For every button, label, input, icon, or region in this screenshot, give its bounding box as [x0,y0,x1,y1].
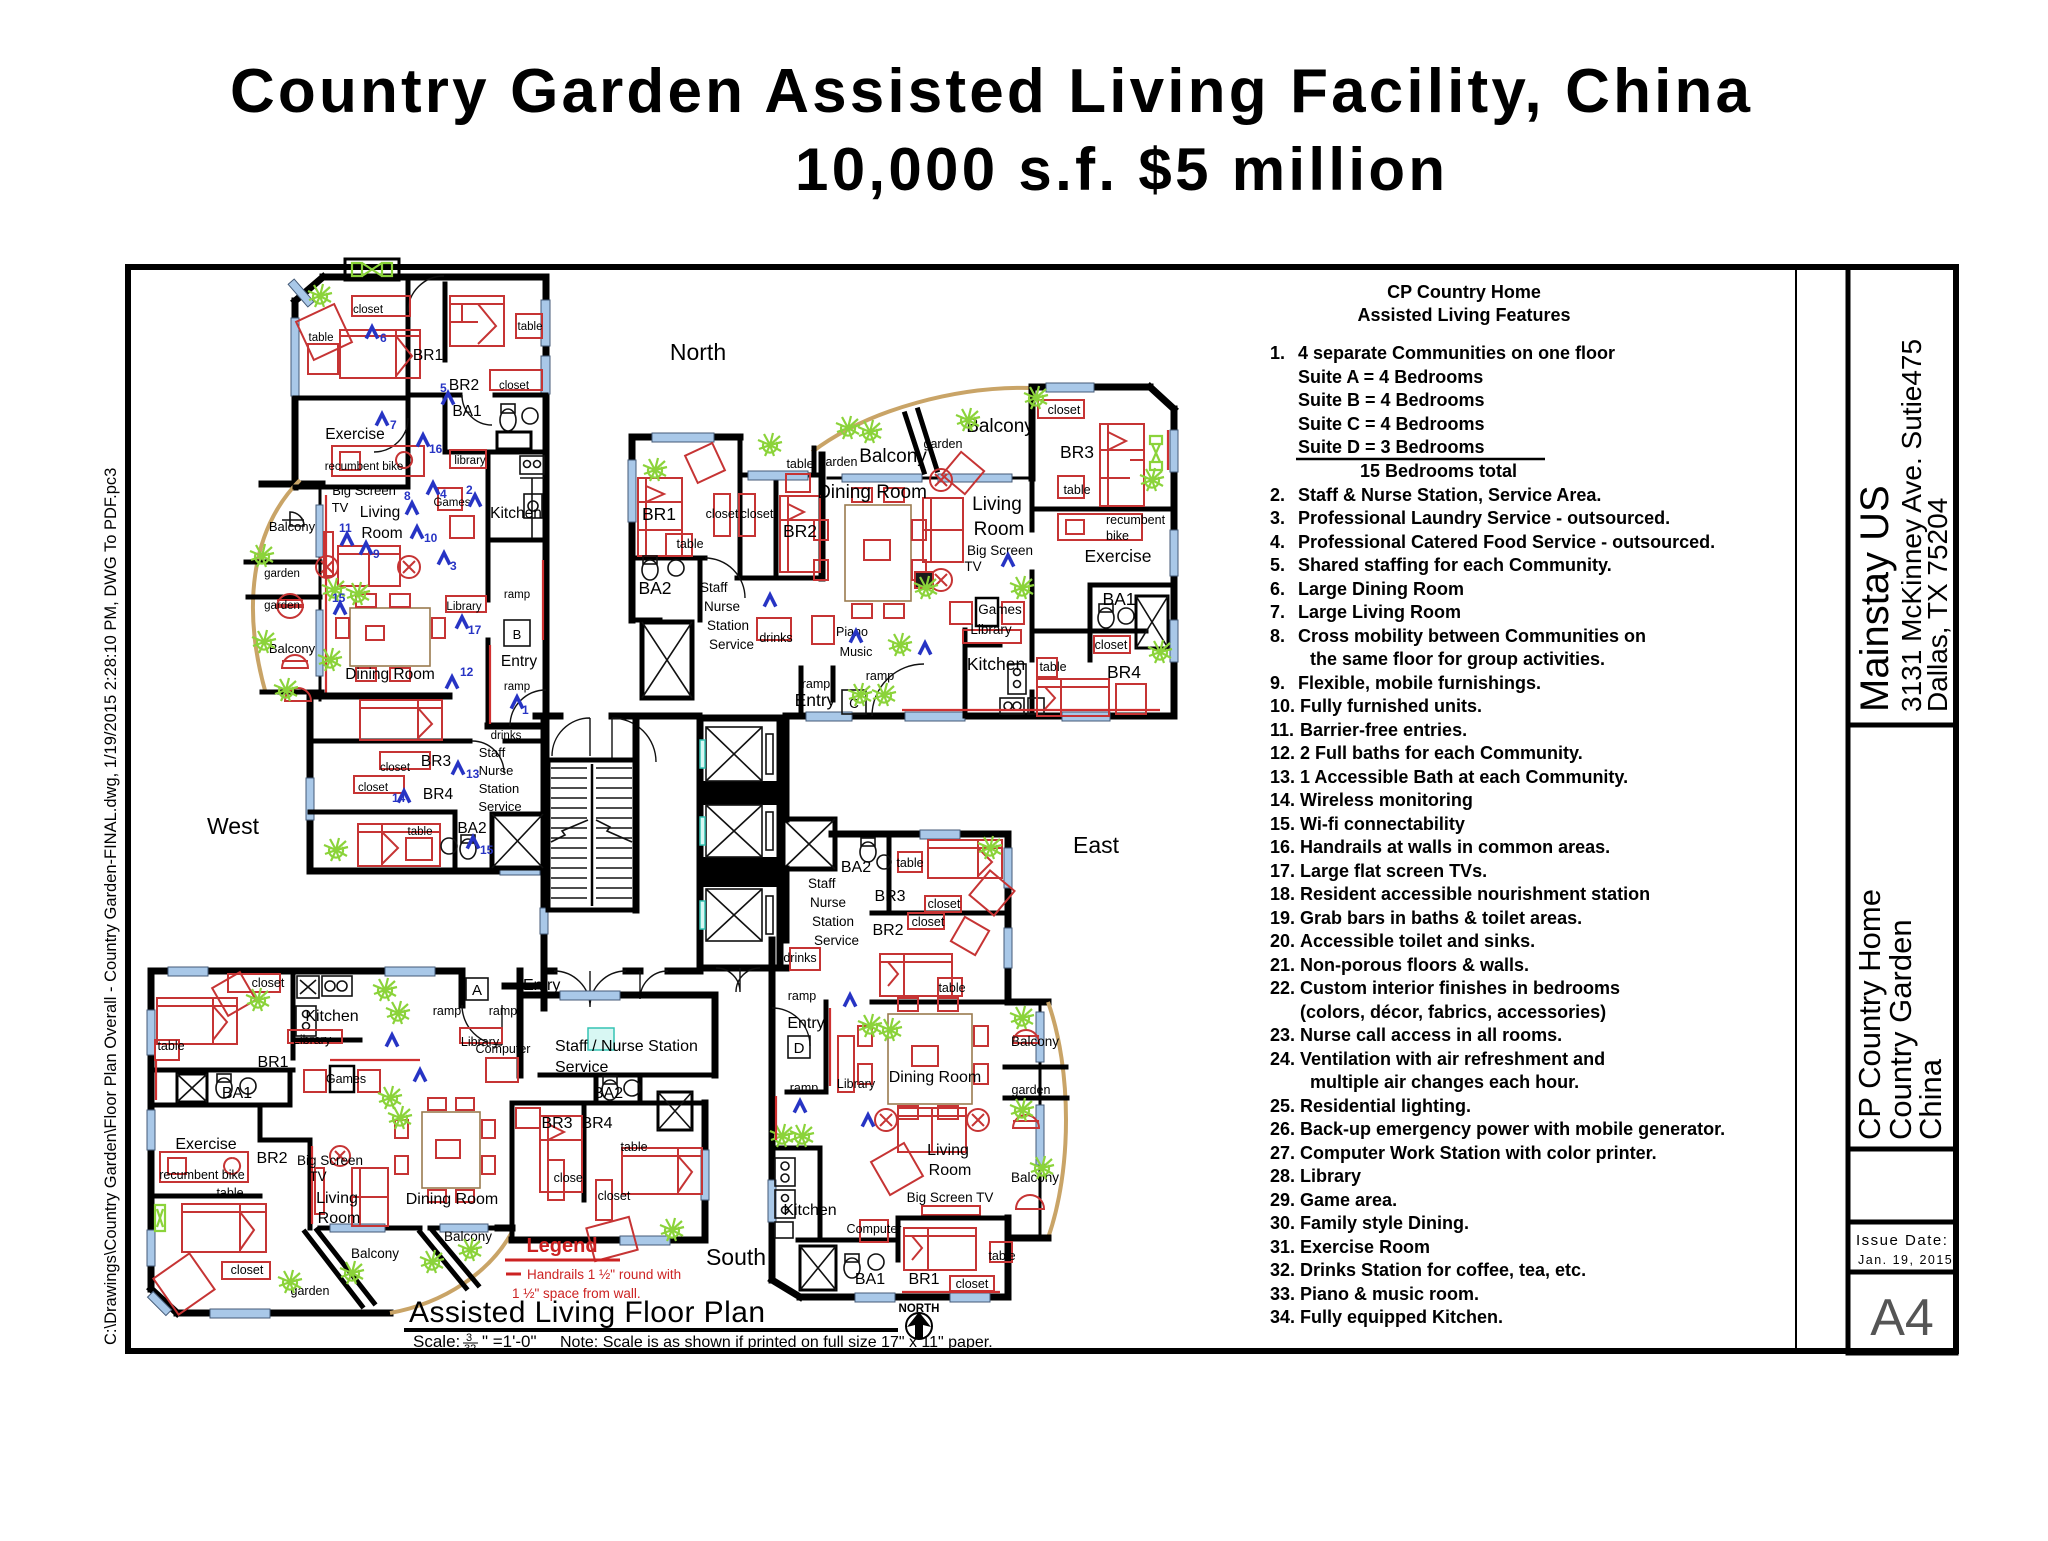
svg-text:8.: 8. [1270,626,1285,646]
svg-text:9: 9 [373,547,380,561]
svg-text:Issue Date:: Issue Date: [1856,1232,1948,1249]
svg-text:Living: Living [360,504,401,521]
svg-text:16: 16 [429,442,443,456]
svg-text:BA1: BA1 [222,1085,252,1102]
svg-text:ramp: ramp [790,1081,819,1095]
svg-text:Dining Room: Dining Room [889,1069,981,1086]
svg-text:Library: Library [293,1033,332,1047]
svg-text:library: library [454,455,486,467]
svg-text:multiple air changes each hour: multiple air changes each hour. [1310,1072,1579,1092]
svg-text:21.: 21. [1270,955,1295,975]
svg-text:drinks: drinks [783,951,816,965]
svg-text:17.: 17. [1270,861,1295,881]
svg-text:25.: 25. [1270,1096,1295,1116]
svg-text:15.: 15. [1270,814,1295,834]
svg-text:5.: 5. [1270,555,1285,575]
svg-text:BR1: BR1 [413,347,443,364]
svg-text:19.: 19. [1270,908,1295,928]
svg-text:Balcony: Balcony [1011,1034,1059,1049]
svg-text:Balcony: Balcony [269,641,316,656]
svg-text:13.: 13. [1270,767,1295,787]
svg-text:closet: closet [231,1263,264,1277]
svg-text:Service: Service [814,933,859,948]
svg-text:BR4: BR4 [581,1115,612,1132]
svg-text:Big Screen TV: Big Screen TV [907,1190,994,1205]
svg-text:Suite A = 4 Bedrooms: Suite A = 4 Bedrooms [1298,367,1483,387]
svg-text:BA2: BA2 [638,578,671,598]
svg-text:30.: 30. [1270,1213,1295,1233]
svg-text:garden: garden [819,455,858,469]
svg-text:Balcony: Balcony [444,1229,492,1244]
svg-text:Resident accessible nourishmen: Resident accessible nourishment station [1300,884,1650,904]
svg-text:B: B [513,627,522,642]
svg-text:2 Full baths for each Communit: 2 Full baths for each Community. [1300,743,1583,763]
svg-text:24.: 24. [1270,1049,1295,1069]
svg-text:Game area.: Game area. [1300,1190,1397,1210]
svg-text:ramp: ramp [866,669,895,683]
svg-text:Service: Service [709,637,754,652]
svg-text:Station: Station [707,618,749,633]
svg-text:South: South [706,1244,766,1270]
svg-text:Fully furnished units.: Fully furnished units. [1300,696,1482,716]
svg-text:32.: 32. [1270,1260,1295,1280]
svg-text:Music: Music [840,645,873,659]
svg-text:drinks: drinks [491,730,522,742]
svg-text:table: table [309,332,334,344]
svg-text:BR3: BR3 [421,753,451,770]
svg-text:BR1: BR1 [642,504,676,524]
svg-text:A4: A4 [1870,1289,1934,1347]
svg-text:Accessible toilet and sinks.: Accessible toilet and sinks. [1300,931,1535,951]
svg-text:recumbent: recumbent [1106,513,1166,527]
svg-text:closet: closet [353,304,384,316]
svg-text:5: 5 [440,381,447,395]
svg-text:Entry: Entry [795,690,836,710]
svg-text:Nurse: Nurse [810,895,846,910]
svg-text:Games: Games [326,1072,366,1086]
svg-text:CP Country Home: CP Country Home [1852,889,1887,1140]
svg-text:Entry: Entry [501,653,537,670]
svg-text:Dining Room: Dining Room [817,482,927,503]
svg-text:closet: closet [499,380,530,392]
svg-text:Exercise Room: Exercise Room [1300,1237,1430,1257]
svg-text:Wi-fi connectability: Wi-fi connectability [1300,814,1465,834]
svg-text:" =1'-0": " =1'-0" [482,1332,537,1351]
svg-text:the same floor for group activ: the same floor for group activities. [1310,649,1605,669]
svg-text:Nurse: Nurse [704,599,740,614]
svg-text:drinks: drinks [759,631,792,645]
svg-text:table: table [157,1039,184,1053]
svg-text:BR2: BR2 [256,1150,287,1167]
svg-text:10.: 10. [1270,696,1295,716]
svg-text:Library: Library [837,1077,876,1091]
svg-text:29.: 29. [1270,1190,1295,1210]
svg-text:closet: closet [1095,638,1128,652]
svg-text:34.: 34. [1270,1307,1295,1327]
svg-text:26.: 26. [1270,1119,1295,1139]
svg-text:Scale:: Scale: [413,1332,460,1351]
svg-text:Room: Room [318,1210,361,1227]
svg-text:Handrails 1 ½" round with: Handrails 1 ½" round with [527,1267,681,1282]
svg-text:Kitchen: Kitchen [305,1008,358,1025]
svg-text:closet: closet [928,897,961,911]
svg-text:Drinks Station for coffee, tea: Drinks Station for coffee, tea, etc. [1300,1260,1586,1280]
svg-text:BR3: BR3 [1060,442,1094,462]
svg-text:2.: 2. [1270,485,1285,505]
svg-text:C:\Drawings\Country Garden\Flo: C:\Drawings\Country Garden\Floor Plan Ov… [102,468,120,1345]
svg-text:Staff / Nurse Station: Staff / Nurse Station [555,1038,698,1055]
svg-text:12: 12 [460,665,474,679]
svg-text:Balcony: Balcony [351,1246,399,1261]
svg-text:Room: Room [974,519,1025,540]
svg-text:Service: Service [478,799,521,814]
svg-text:Staff: Staff [479,745,506,760]
svg-text:table: table [786,457,813,471]
svg-text:Computer: Computer [476,1042,531,1056]
svg-text:Room: Room [929,1162,972,1179]
svg-text:BA1: BA1 [452,403,481,420]
svg-text:Library: Library [1300,1166,1361,1186]
svg-text:BA2: BA2 [457,820,486,837]
svg-text:table: table [1039,660,1066,674]
svg-text:BA2: BA2 [593,1085,623,1102]
svg-text:12.: 12. [1270,743,1295,763]
svg-text:table: table [1063,483,1090,497]
svg-text:33.: 33. [1270,1284,1295,1304]
svg-text:Nurse: Nurse [479,763,514,778]
svg-text:6: 6 [380,331,387,345]
svg-text:garden: garden [264,568,300,580]
svg-text:Balcony: Balcony [966,416,1034,437]
svg-text:32: 32 [464,1343,476,1355]
svg-text:31.: 31. [1270,1237,1295,1257]
svg-text:CP Country Home: CP Country Home [1387,282,1541,302]
svg-text:Large Living Room: Large Living Room [1298,602,1461,622]
svg-text:closet: closet [741,507,774,521]
svg-text:closet: closet [598,1189,631,1203]
svg-text:17: 17 [468,623,482,637]
svg-text:Non-porous floors & walls.: Non-porous floors & walls. [1300,955,1529,975]
svg-text:North: North [670,339,726,365]
svg-text:Flexible, mobile furnishings.: Flexible, mobile furnishings. [1298,673,1541,693]
svg-text:14.: 14. [1270,790,1295,810]
svg-text:Big Screen: Big Screen [967,543,1033,558]
svg-text:23.: 23. [1270,1025,1295,1045]
svg-text:garden: garden [924,437,963,451]
svg-text:West: West [207,813,260,839]
svg-text:27.: 27. [1270,1143,1295,1163]
svg-text:Station: Station [479,781,519,796]
svg-text:11.: 11. [1270,720,1294,740]
svg-text:Family style Dining.: Family style Dining. [1300,1213,1469,1233]
svg-text:BR3: BR3 [874,888,905,905]
svg-text:BR2: BR2 [872,922,903,939]
svg-text:11: 11 [339,521,352,535]
svg-text:China: China [1913,1058,1948,1140]
svg-text:Legend: Legend [526,1235,597,1257]
svg-text:Library: Library [970,622,1012,637]
svg-text:4 separate Communities on one: 4 separate Communities on one floor [1298,343,1615,363]
svg-text:Suite C = 4 Bedrooms: Suite C = 4 Bedrooms [1298,414,1485,434]
svg-text:Library: Library [446,601,481,613]
svg-text:Kitchen: Kitchen [783,1202,836,1219]
svg-text:Jan. 19, 2015: Jan. 19, 2015 [1858,1253,1953,1267]
svg-text:BA2: BA2 [841,859,871,876]
svg-text:Ventilation with air refreshme: Ventilation with air refreshment and [1300,1049,1605,1069]
svg-text:closet: closet [912,915,945,929]
svg-text:1 ½" space from wall.: 1 ½" space from wall. [512,1286,641,1301]
svg-text:Wireless monitoring: Wireless monitoring [1300,790,1473,810]
svg-text:BR2: BR2 [783,521,817,541]
svg-text:table: table [988,1249,1015,1263]
svg-text:Professional Catered Food Serv: Professional Catered Food Service - outs… [1298,532,1715,552]
svg-text:Kitchen: Kitchen [967,654,1025,674]
svg-text:Computer Work Station with col: Computer Work Station with color printer… [1300,1143,1657,1163]
svg-text:Big Screen: Big Screen [297,1153,363,1168]
svg-text:Barrier-free entries.: Barrier-free entries. [1300,720,1467,740]
svg-text:Entry: Entry [523,977,560,994]
svg-text:closet: closet [706,507,739,521]
svg-text:Dining Room: Dining Room [345,666,435,683]
svg-text:Assisted Living Features: Assisted Living Features [1357,305,1570,325]
svg-text:Exercise: Exercise [325,426,384,443]
svg-text:recumbent bike: recumbent bike [325,461,404,473]
svg-text:Large flat screen TVs.: Large flat screen TVs. [1300,861,1487,881]
svg-text:table: table [408,826,433,838]
svg-text:bike: bike [1106,529,1129,543]
svg-text:BR3: BR3 [541,1115,572,1132]
svg-text:Room: Room [361,525,402,542]
svg-text:Dallas, TX 75204: Dallas, TX 75204 [1922,498,1953,712]
svg-text:recumbent bike: recumbent bike [159,1168,245,1182]
svg-text:3.: 3. [1270,508,1285,528]
svg-text:Nurse call access in all rooms: Nurse call access in all rooms. [1300,1025,1562,1045]
svg-text:8: 8 [404,489,411,503]
svg-text:Computer: Computer [847,1222,902,1236]
svg-text:garden: garden [264,600,300,612]
svg-text:Residential lighting.: Residential lighting. [1300,1096,1471,1116]
svg-text:Grab bars in baths & toilet ar: Grab bars in baths & toilet areas. [1300,908,1582,928]
svg-text:Staff: Staff [700,580,728,595]
svg-text:18.: 18. [1270,884,1295,904]
svg-text:BR4: BR4 [423,786,454,803]
svg-text:table: table [938,981,965,995]
svg-text:Suite B = 4 Bedrooms: Suite B = 4 Bedrooms [1298,390,1485,410]
svg-text:Piano & music room.: Piano & music room. [1300,1284,1479,1304]
svg-text:6.: 6. [1270,579,1285,599]
svg-text:Station: Station [812,914,854,929]
svg-text:22.: 22. [1270,978,1295,998]
svg-text:Living: Living [927,1142,969,1159]
svg-text:(colors, décor, fabrics, acces: (colors, décor, fabrics, accessories) [1300,1002,1606,1022]
svg-text:East: East [1073,832,1120,858]
svg-text:1: 1 [522,703,529,717]
svg-text:1 Accessible Bath at each Comm: 1 Accessible Bath at each Community. [1300,767,1628,787]
svg-text:closet: closet [380,762,411,774]
svg-text:Suite D = 3 Bedrooms: Suite D = 3 Bedrooms [1298,437,1485,457]
svg-text:ramp: ramp [504,589,530,601]
svg-text:10,000 s.f. $5 million: 10,000 s.f. $5 million [795,136,1445,203]
svg-text:Staff: Staff [808,876,836,891]
svg-text:ramp: ramp [504,681,530,693]
svg-text:ramp: ramp [433,1004,462,1018]
svg-text:15: 15 [480,843,494,857]
svg-text:3: 3 [450,559,457,573]
svg-text:table: table [676,537,703,551]
svg-text:BR2: BR2 [449,377,479,394]
svg-text:1.: 1. [1270,343,1285,363]
svg-text:20.: 20. [1270,931,1295,951]
svg-text:BR1: BR1 [257,1054,288,1071]
svg-text:4.: 4. [1270,532,1285,552]
svg-text:Dining Room: Dining Room [406,1191,498,1208]
svg-text:Balcony: Balcony [859,446,927,467]
svg-text:TV: TV [309,1169,326,1184]
svg-text:13: 13 [466,767,480,781]
svg-text:2: 2 [466,483,473,497]
svg-text:14: 14 [392,791,406,805]
svg-text:closet: closet [1048,403,1081,417]
svg-text:table: table [896,856,923,870]
svg-text:Mainstay US: Mainstay US [1853,485,1897,712]
svg-text:closet: closet [252,976,285,990]
svg-text:Service: Service [555,1059,608,1076]
svg-text:table: table [216,1186,243,1200]
svg-text:A: A [472,982,482,999]
svg-text:Staff & Nurse Station, Service: Staff & Nurse Station, Service Area. [1298,485,1601,505]
svg-text:7: 7 [390,418,397,432]
svg-text:BR1: BR1 [908,1271,939,1288]
svg-text:Fully equipped Kitchen.: Fully equipped Kitchen. [1300,1307,1503,1327]
svg-text:table: table [620,1140,647,1154]
svg-text:TV: TV [964,559,981,574]
svg-text:BA1: BA1 [855,1271,885,1288]
svg-text:Large Dining Room: Large Dining Room [1298,579,1464,599]
svg-text:TV: TV [332,500,349,515]
svg-text:ramp: ramp [489,1004,518,1018]
svg-text:Custom interior finishes in be: Custom interior finishes in bedrooms [1300,978,1620,998]
svg-text:Living: Living [972,494,1022,515]
svg-text:Living: Living [316,1190,358,1207]
svg-text:Kitchen: Kitchen [490,505,542,522]
svg-text:BR4: BR4 [1107,662,1141,682]
svg-text:table: table [518,321,543,333]
svg-text:10: 10 [424,531,438,545]
svg-text:Big Screen: Big Screen [332,483,396,498]
svg-text:Shared staffing for each Commu: Shared staffing for each Community. [1298,555,1612,575]
svg-text:Balcony: Balcony [269,519,316,534]
svg-text:Cross mobility between Communi: Cross mobility between Communities on [1298,626,1646,646]
svg-text:ramp: ramp [788,989,817,1003]
svg-text:9.: 9. [1270,673,1285,693]
svg-text:Games: Games [978,602,1022,617]
svg-text:15 Bedrooms total: 15 Bedrooms total [1360,461,1517,481]
svg-text:15: 15 [332,591,346,605]
svg-text:7.: 7. [1270,602,1285,622]
svg-text:4: 4 [440,487,447,501]
svg-text:D: D [794,1040,805,1057]
svg-text:closet: closet [358,782,389,794]
svg-text:ramp: ramp [802,677,831,691]
svg-text:BA1: BA1 [1102,589,1135,609]
svg-text:Professional Laundry Service -: Professional Laundry Service - outsource… [1298,508,1670,528]
svg-text:16.: 16. [1270,837,1295,857]
svg-text:Exercise: Exercise [1084,546,1151,566]
svg-text:Entry: Entry [787,1015,824,1032]
svg-text:Exercise: Exercise [175,1136,236,1153]
svg-text:Back-up emergency power with m: Back-up emergency power with mobile gene… [1300,1119,1725,1139]
svg-text:garden: garden [1012,1083,1051,1097]
svg-text:28.: 28. [1270,1166,1295,1186]
svg-text:closet: closet [956,1277,989,1291]
svg-text:closet: closet [554,1171,587,1185]
svg-text:Handrails at walls in common a: Handrails at walls in common areas. [1300,837,1610,857]
